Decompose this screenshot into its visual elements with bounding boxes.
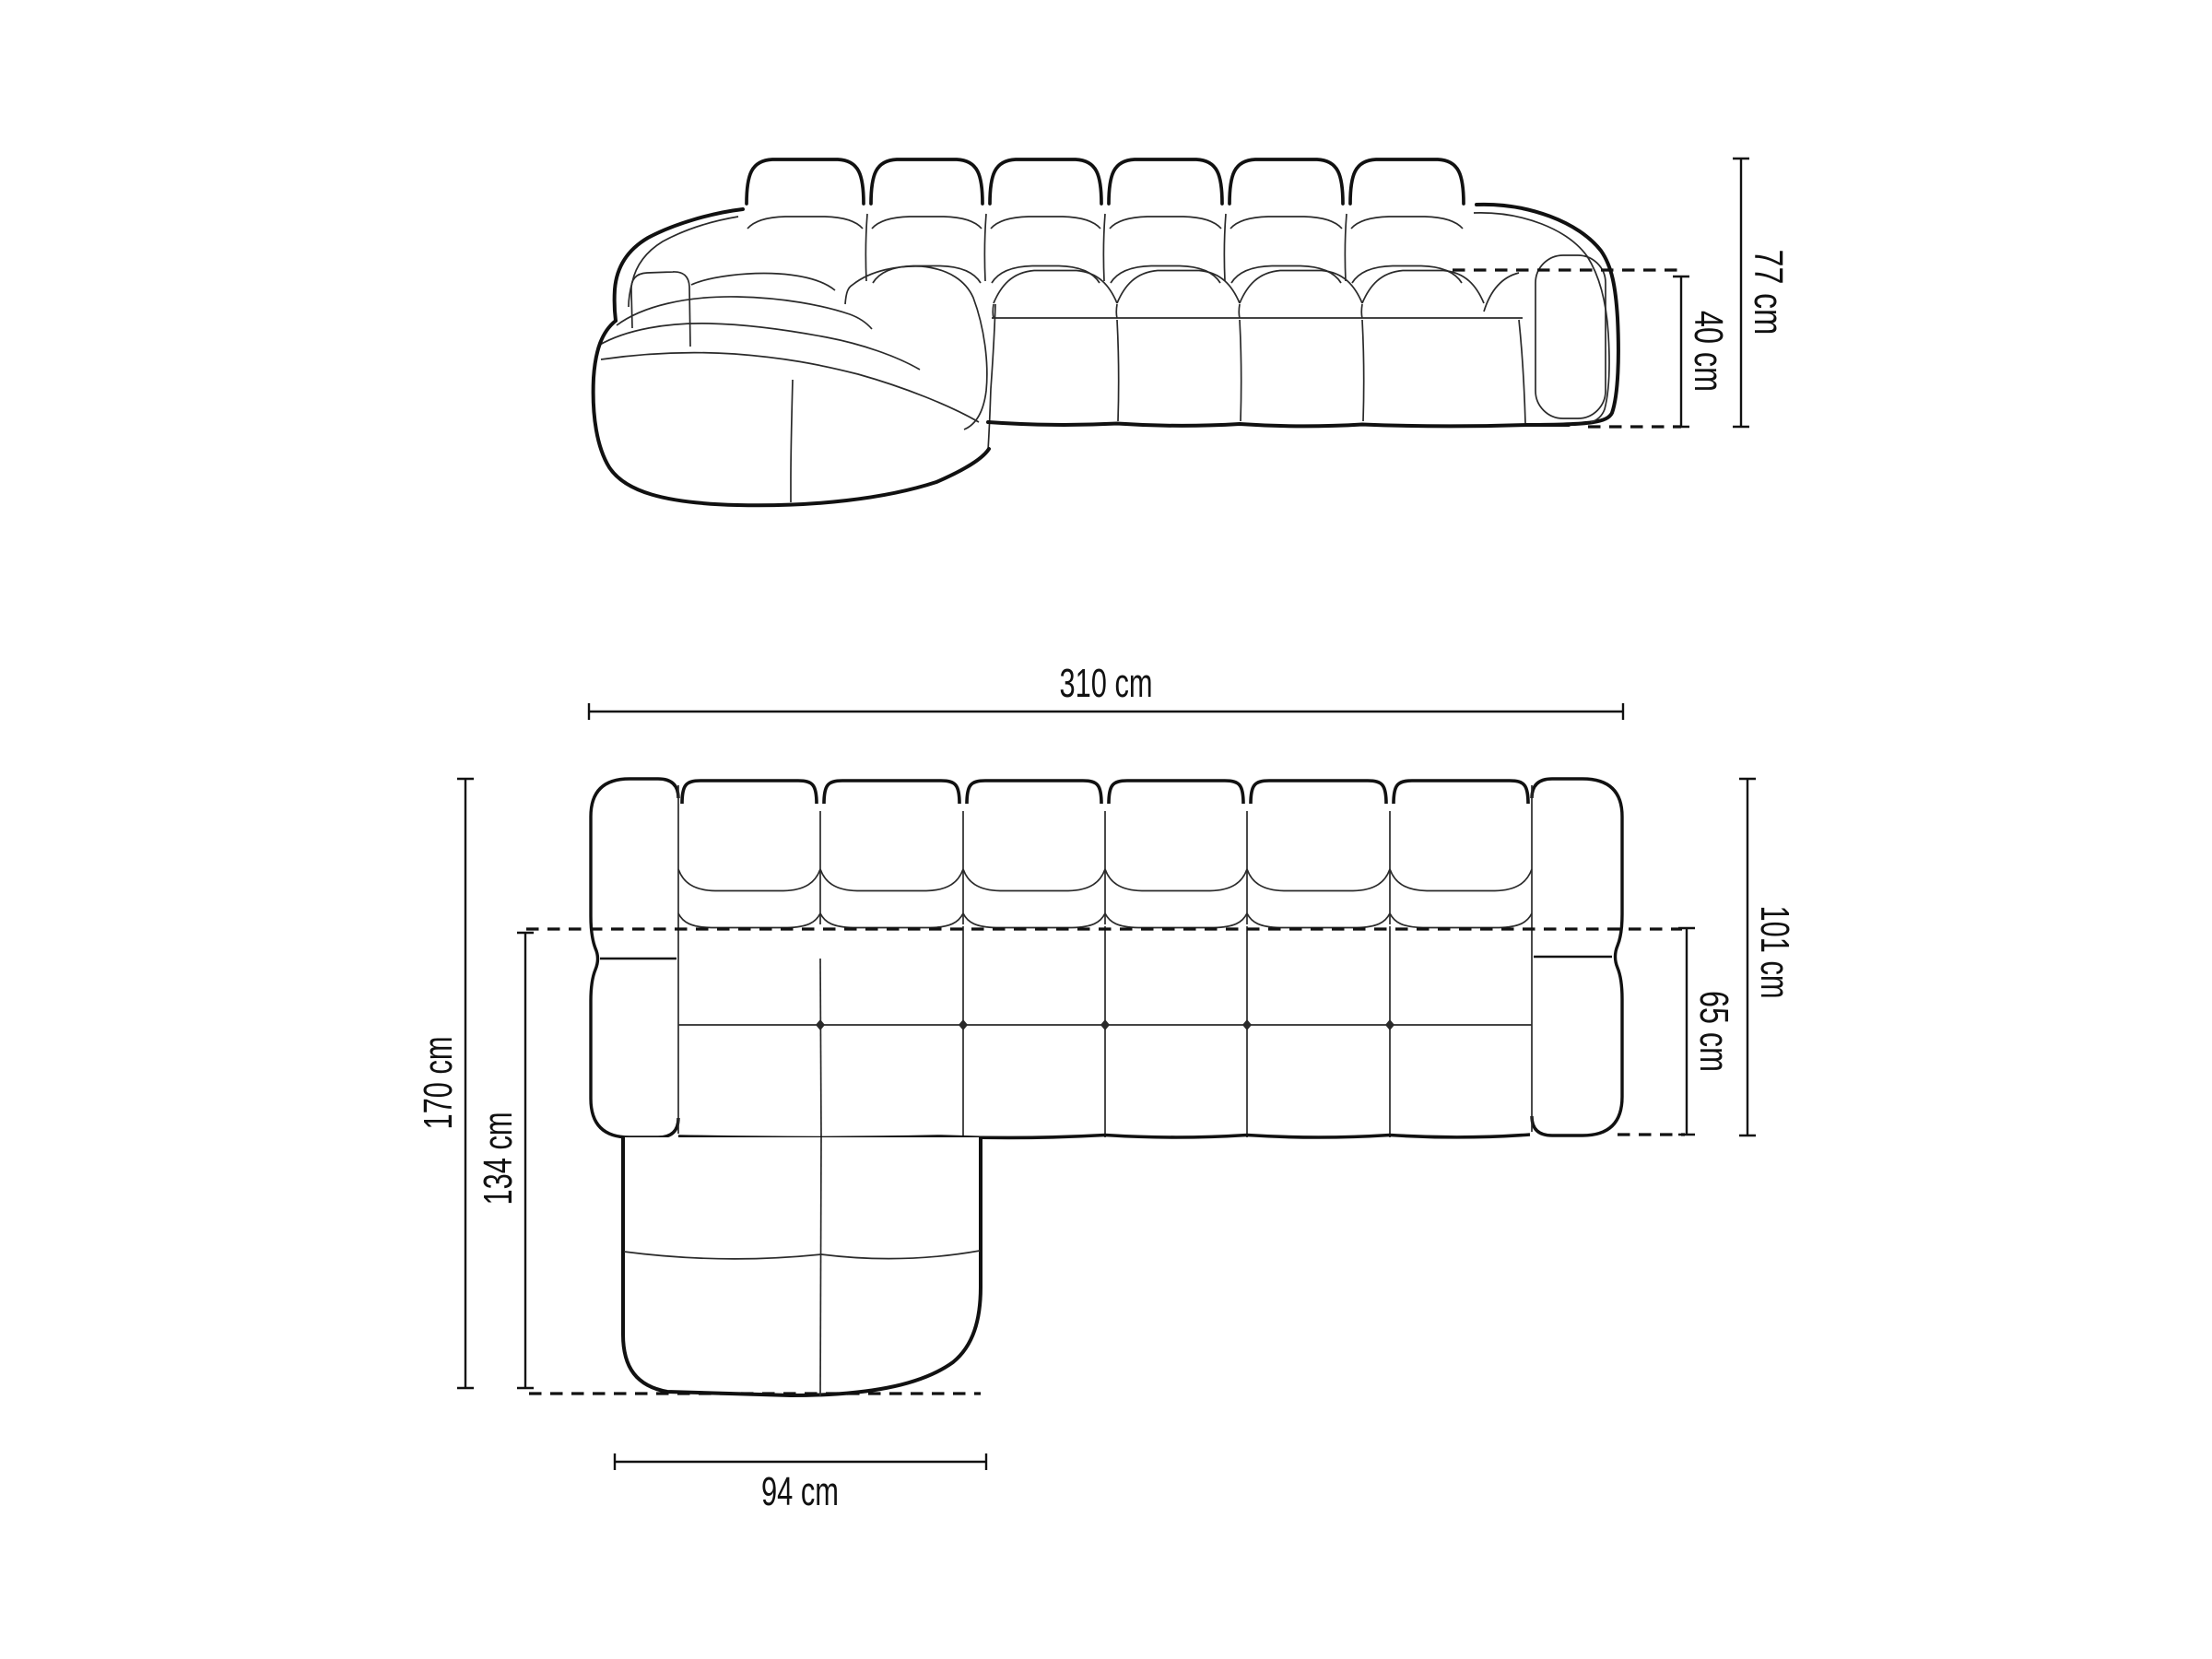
- svg-text:40 cm: 40 cm: [1686, 311, 1731, 392]
- svg-text:310 cm: 310 cm: [1060, 661, 1153, 706]
- svg-text:170 cm: 170 cm: [416, 1037, 461, 1130]
- svg-text:77 cm: 77 cm: [1746, 250, 1791, 335]
- svg-text:65 cm: 65 cm: [1691, 991, 1736, 1072]
- svg-text:134 cm: 134 cm: [476, 1112, 521, 1206]
- svg-text:101 cm: 101 cm: [1752, 906, 1797, 999]
- svg-text:94 cm: 94 cm: [761, 1469, 839, 1514]
